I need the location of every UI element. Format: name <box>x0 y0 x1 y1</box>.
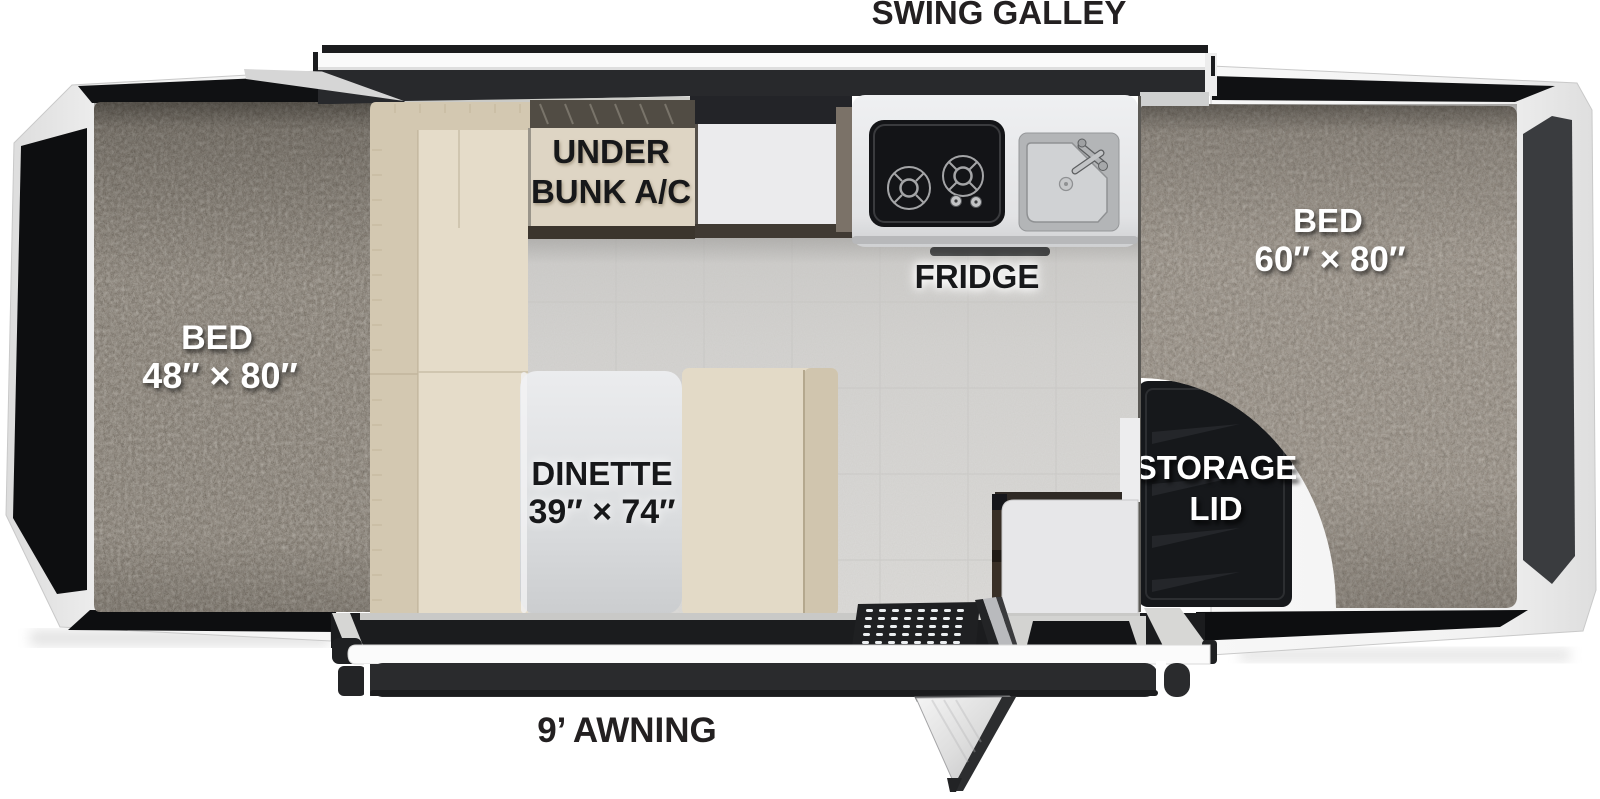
svg-text:9’ AWNING: 9’ AWNING <box>537 711 717 750</box>
svg-text:SWING GALLEY: SWING GALLEY <box>872 0 1127 31</box>
svg-text:BED: BED <box>1293 202 1363 239</box>
svg-text:60″ × 80″: 60″ × 80″ <box>1254 240 1406 279</box>
svg-text:BED: BED <box>181 319 253 357</box>
svg-text:FRIDGE: FRIDGE <box>915 258 1040 295</box>
svg-text:DINETTE: DINETTE <box>531 455 672 492</box>
svg-text:LID: LID <box>1189 490 1242 527</box>
svg-text:39″ × 74″: 39″ × 74″ <box>529 493 676 531</box>
svg-text:BUNK A/C: BUNK A/C <box>531 173 691 210</box>
svg-text:48″ × 80″: 48″ × 80″ <box>142 355 298 396</box>
svg-text:STORAGE: STORAGE <box>1135 449 1298 486</box>
svg-text:UNDER: UNDER <box>552 133 670 170</box>
